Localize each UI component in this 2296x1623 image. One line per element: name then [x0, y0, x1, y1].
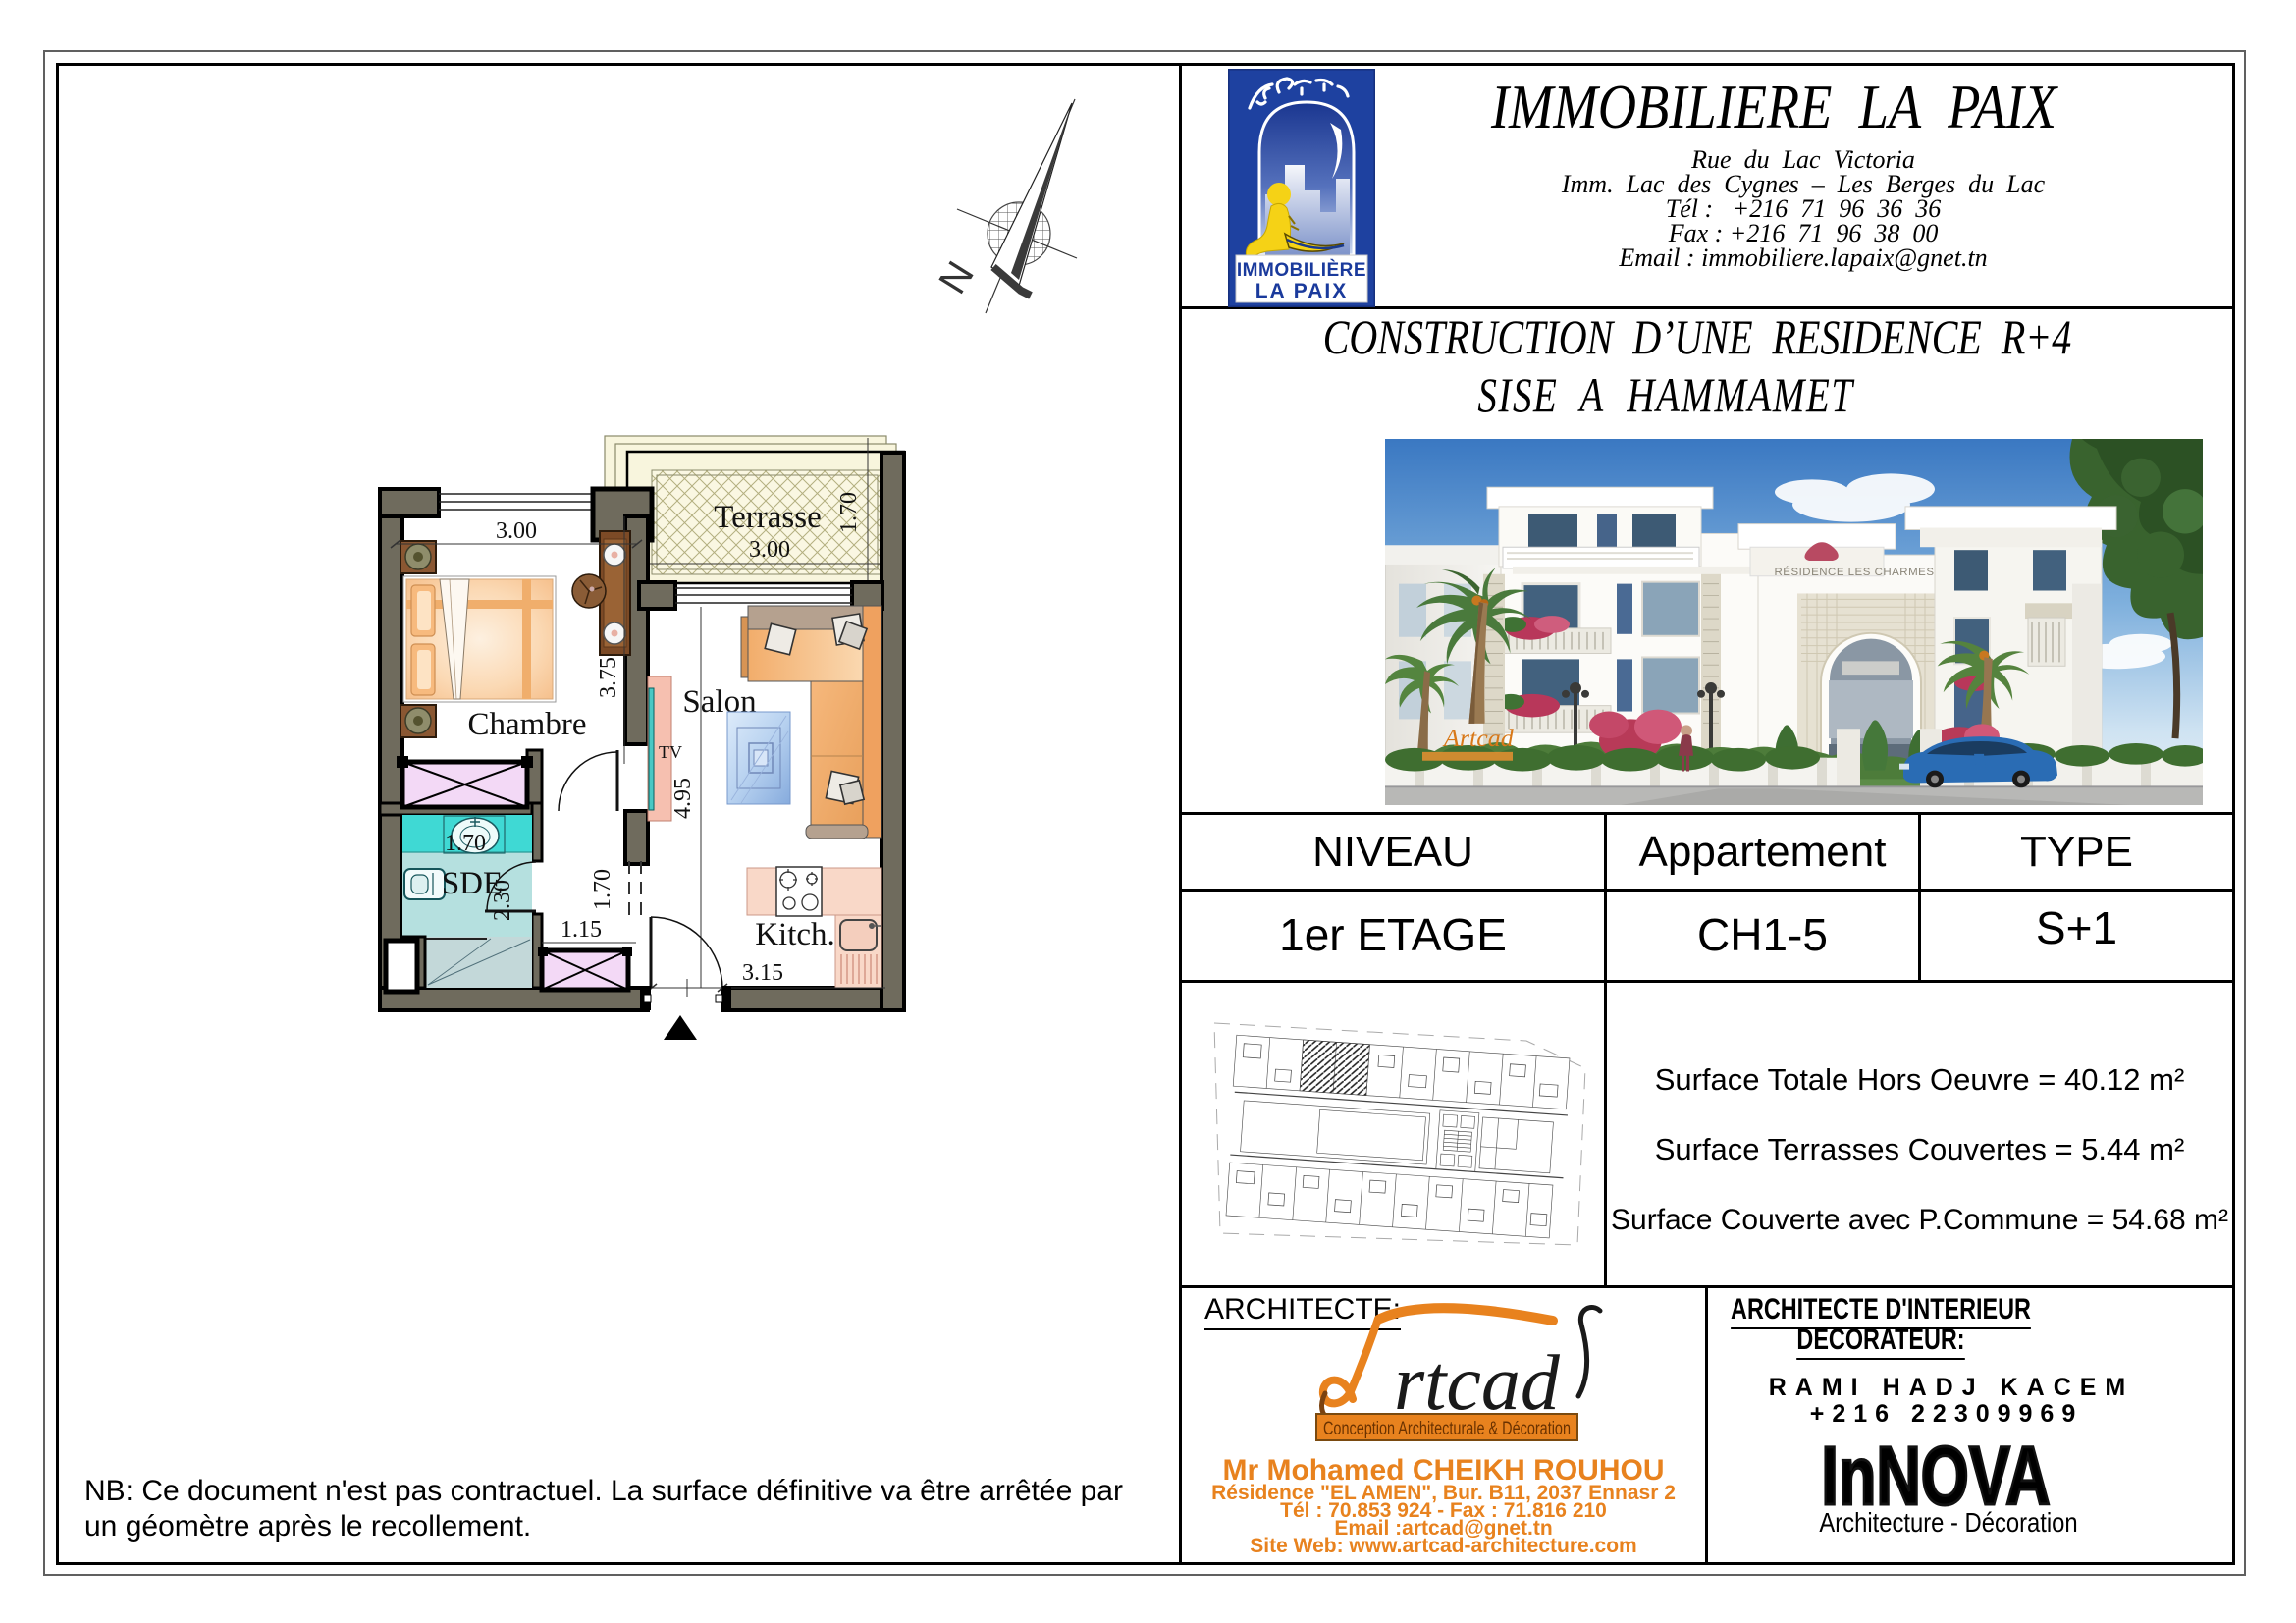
svg-text:1.70: 1.70: [590, 869, 615, 910]
svg-text:IMMOBILIÈRE: IMMOBILIÈRE: [1237, 259, 1366, 281]
svg-text:3.15: 3.15: [742, 960, 783, 986]
svg-text:3.00: 3.00: [496, 518, 537, 544]
svg-text:LA PAIX: LA PAIX: [1255, 280, 1349, 302]
svg-text:4.95: 4.95: [670, 778, 696, 819]
svg-text:RÉSIDENCE LES CHARMES: RÉSIDENCE LES CHARMES: [1775, 566, 1935, 578]
svg-text:Artcad: Artcad: [1442, 724, 1514, 752]
svg-text:1.15: 1.15: [561, 917, 602, 943]
svg-text:1.70: 1.70: [836, 492, 862, 533]
svg-text:Conception Architecturale & Dé: Conception Architecturale & Décoration: [1323, 1419, 1571, 1439]
svg-text:Chambre: Chambre: [468, 707, 587, 742]
svg-text:1.70: 1.70: [445, 831, 486, 856]
svg-text:Kitch.: Kitch.: [755, 917, 835, 952]
svg-text:3.00: 3.00: [749, 537, 790, 563]
svg-text:Terrasse: Terrasse: [714, 500, 821, 535]
svg-text:TV: TV: [659, 742, 682, 762]
svg-text:N: N: [933, 254, 983, 301]
svg-text:3.75: 3.75: [596, 657, 621, 698]
